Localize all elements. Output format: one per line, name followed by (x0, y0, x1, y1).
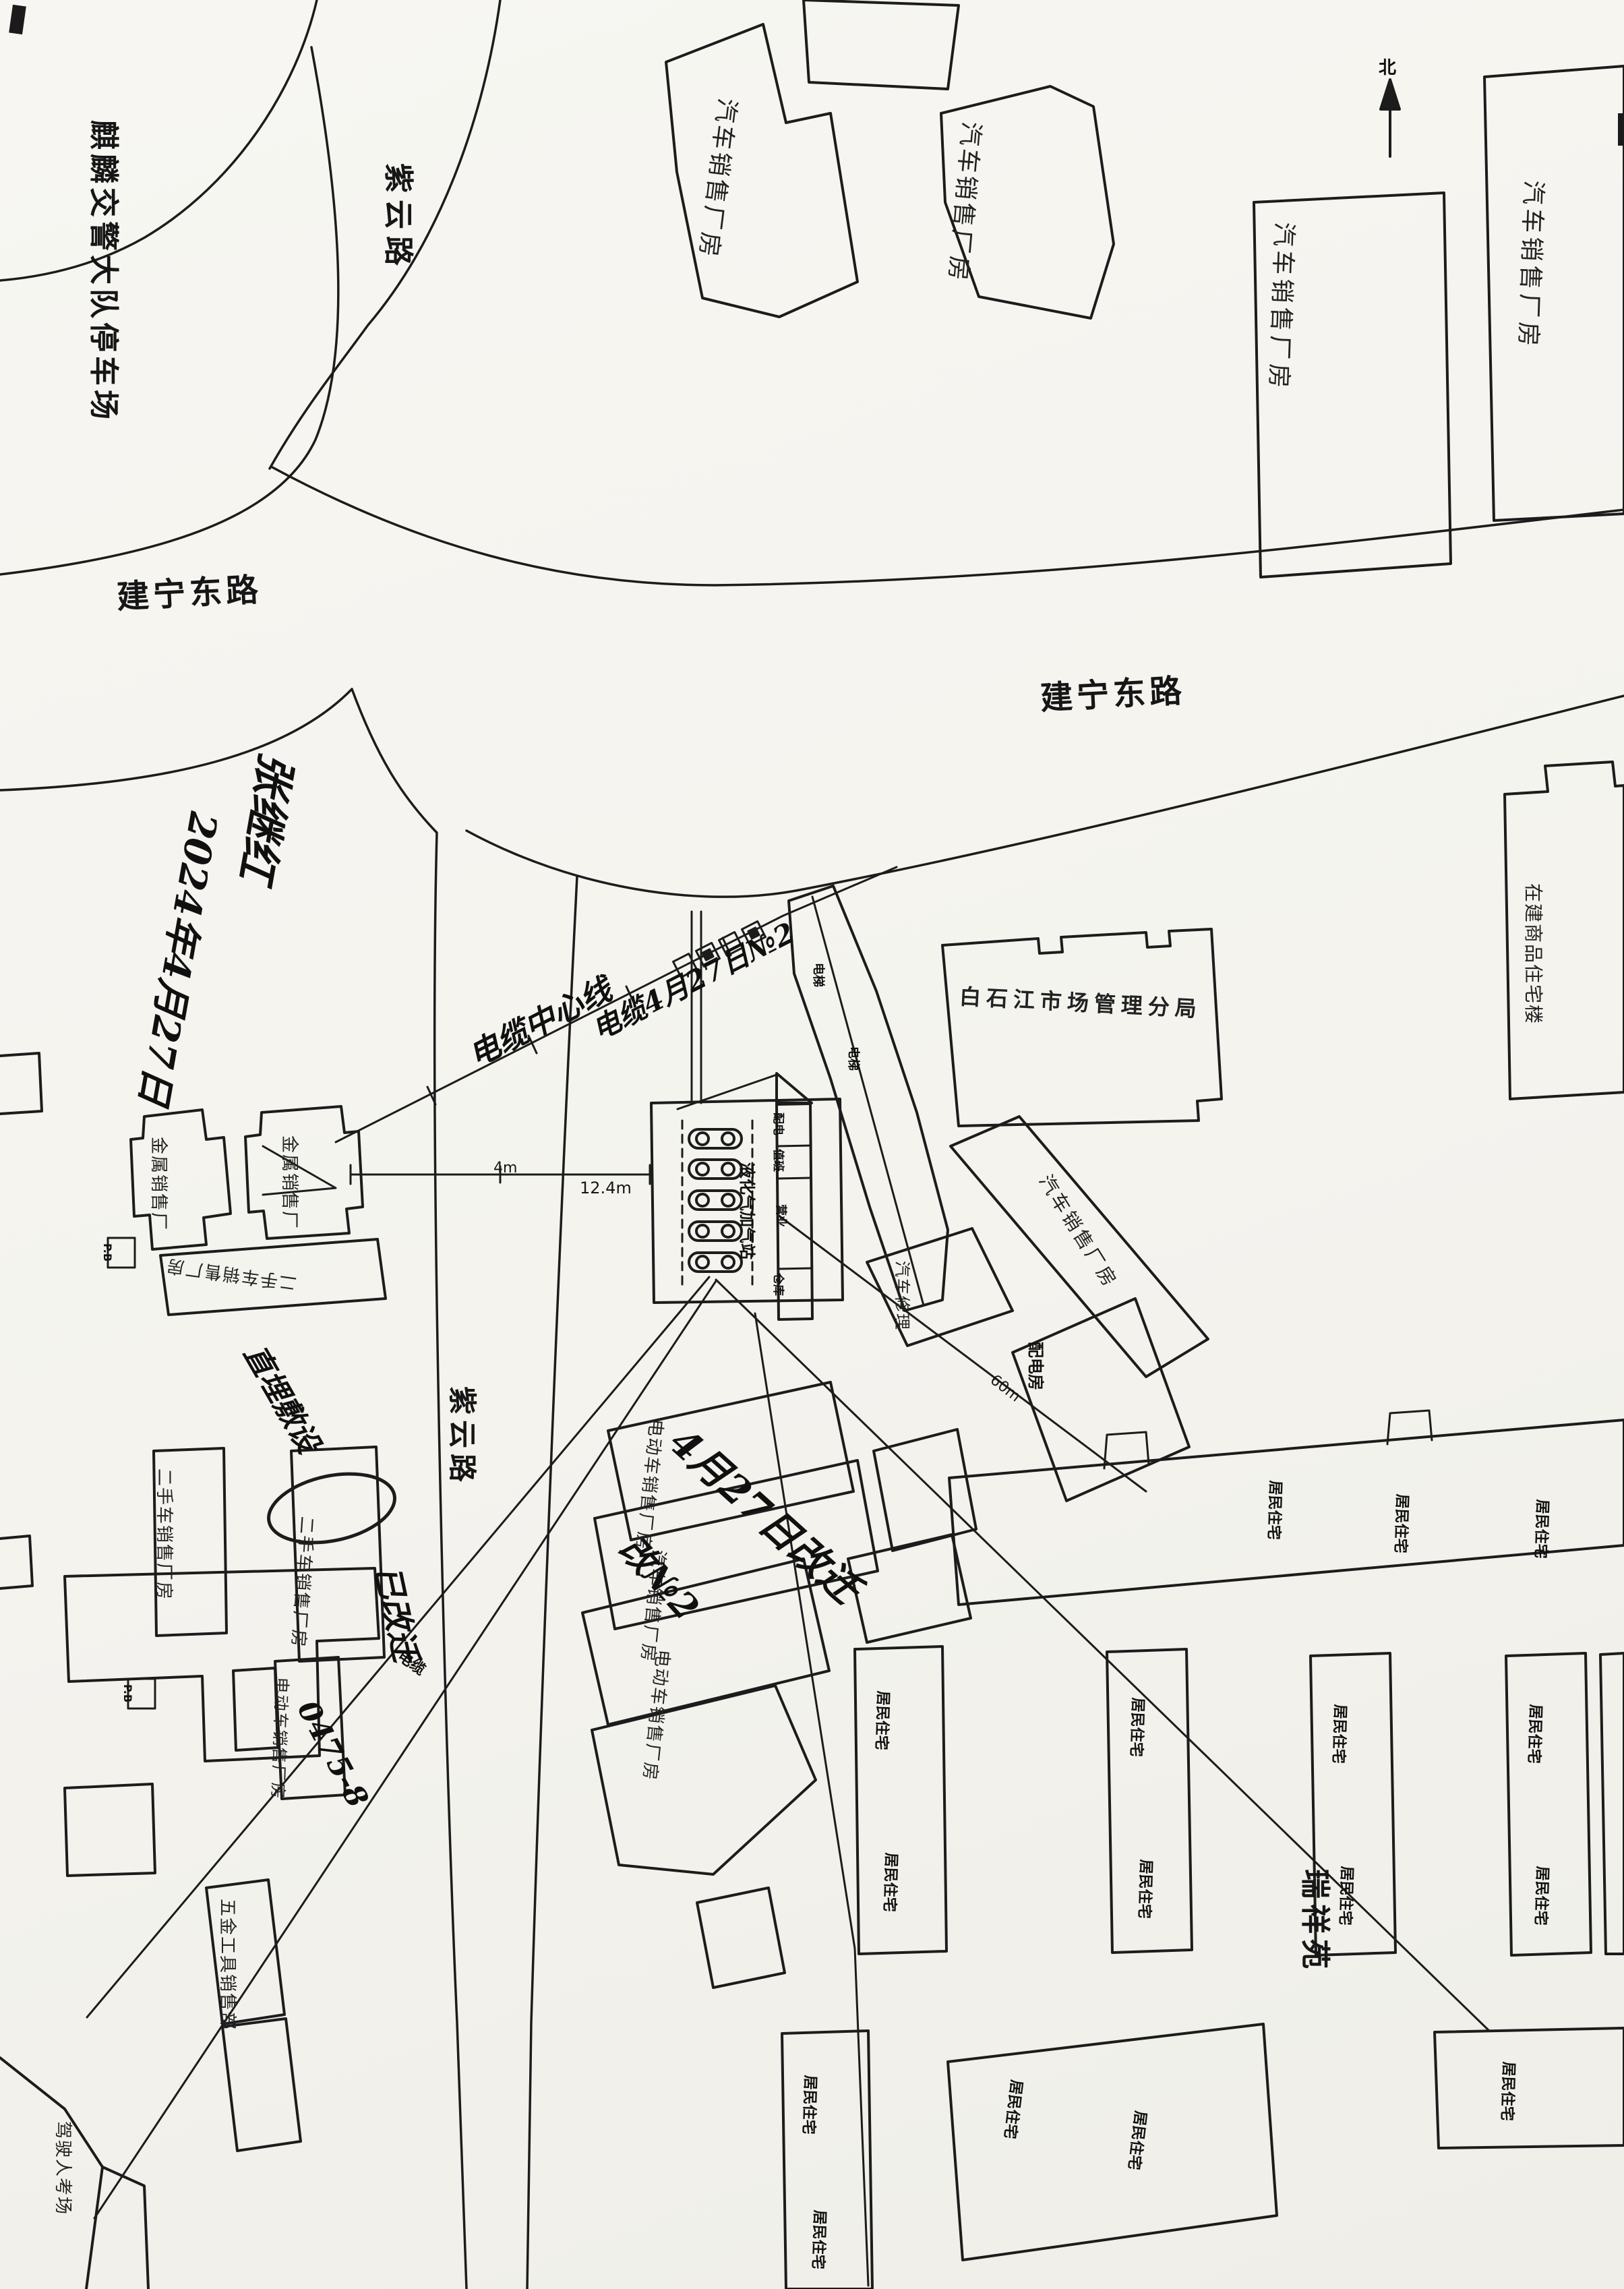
bldg-label-usedcar-left: 二手车销售厂房 (155, 1468, 173, 1601)
bldg-label-ebike-sales-2: 电动车销售厂房 (640, 1648, 671, 1782)
area-label-ruixiangyuan: 瑞祥苑 (1300, 1869, 1329, 1974)
bldg-label-hardware-tools: 五金工具销售部 (218, 1899, 236, 2031)
road-label-ziyun-south: 紫云路 (448, 1386, 476, 1487)
bldg-label-market-bureau: 白石江市场管理分局 (959, 986, 1202, 1020)
box-label-pb-2: P.B (122, 1684, 133, 1702)
bldg-label-residence-h1: 居民住宅 (1499, 2061, 1515, 2121)
room-label-yingye: 营业 (775, 1204, 786, 1227)
handwriting-big-note: 4月27日改迁 (663, 1421, 866, 1609)
bldg-label-residence-d2: 居民住宅 (1337, 1866, 1354, 1926)
bldg-label-usedcar-flipped: 二手车销售厂房 (164, 1256, 298, 1292)
room-label-peidian: 配电 (772, 1112, 783, 1135)
bldg-label-residence-c1: 居民住宅 (1128, 1697, 1145, 1757)
dim-label-12-4m: 12.4m (580, 1180, 632, 1196)
station-label-lpg: 液化气加气站 (739, 1162, 755, 1259)
road-label-jianning-west: 建宁东路 (116, 574, 263, 614)
bldg-label-residence-a3: 居民住宅 (1532, 1499, 1549, 1559)
handwriting-buried-note: 直埋敷设 (239, 1340, 324, 1458)
bldg-label-car-sales-2: 汽车销售厂房 (944, 121, 983, 284)
bldg-label-metal-sales-1: 金属销售厂 (150, 1137, 167, 1231)
bldg-label-residence-c2: 居民住宅 (1136, 1859, 1153, 1919)
handwriting-date: 2024年4月27日 (133, 809, 222, 1108)
road-label-qilin-parking: 麒麟交警大队停车场 (88, 120, 118, 423)
room-label-zhiban: 值班 (772, 1149, 783, 1172)
bldg-label-residence-e1: 居民住宅 (1526, 1704, 1542, 1764)
bldg-label-residence-f2: 居民住宅 (810, 2209, 826, 2269)
handwriting-number-note: 0475-8 (292, 1696, 372, 1812)
bldg-label-residence-f1: 居民住宅 (800, 2075, 817, 2135)
bldg-label-under-construction: 在建商品住宅楼 (1524, 883, 1542, 1025)
room-label-cangku: 仓库 (772, 1273, 783, 1296)
bldg-label-car-sales-diag: 汽车销售厂房 (1035, 1172, 1120, 1292)
bldg-label-metal-sales-2: 金属销售厂 (280, 1135, 298, 1230)
handwriting-oval-note: 已改迁 (370, 1563, 422, 1665)
box-label-pb-1: P.B (102, 1243, 113, 1261)
handwriting-signature: 张继红 (233, 749, 298, 884)
bldg-label-car-sales-3: 汽车销售厂房 (1265, 222, 1296, 392)
bldg-label-usedcar-mid: 二手车销售厂房 (289, 1516, 315, 1648)
bldg-label-residence-b2: 居民住宅 (881, 1852, 898, 1912)
bldg-label-residence-a2: 居民住宅 (1392, 1493, 1409, 1553)
map-labels-layer: 麒麟交警大队停车场紫云路建宁东路建宁东路紫云路汽车销售厂房汽车销售厂房汽车销售厂… (0, 0, 1624, 2289)
bldg-label-ebike-sales-3: 电动车销售厂房 (270, 1677, 290, 1800)
dim-label-4m: 4m (493, 1161, 517, 1176)
bldg-label-residence-b1: 居民住宅 (873, 1690, 890, 1750)
bldg-label-residence-g1: 居民住宅 (1001, 2079, 1023, 2139)
room-label-elevator-2: 电梯 (847, 1046, 859, 1071)
north-arrow-label: 北 (1379, 59, 1396, 77)
road-label-ziyun-north: 紫云路 (383, 163, 413, 272)
road-label-jianning-east: 建宁东路 (1040, 675, 1186, 715)
bldg-label-car-repair: 汽车修理 (894, 1261, 910, 1331)
room-label-elevator-1: 电梯 (812, 963, 824, 987)
dim-label-60m: 60m (987, 1373, 1023, 1405)
bldg-label-car-sales-4: 汽车销售厂房 (1515, 180, 1545, 351)
bldg-label-car-sales-1: 汽车销售厂房 (695, 97, 739, 261)
bldg-label-driver-test: 驾驶人考场 (54, 2121, 71, 2216)
bldg-label-residence-d1: 居民住宅 (1330, 1704, 1347, 1764)
bldg-label-residence-a1: 居民住宅 (1265, 1480, 1282, 1540)
bldg-label-peidianfang: 配电房 (1027, 1342, 1044, 1390)
bldg-label-residence-g2: 居民住宅 (1125, 2110, 1147, 2170)
handwriting-cable-note: 电缆4月27日№2 (588, 918, 800, 1044)
bldg-label-residence-e2: 居民住宅 (1532, 1866, 1549, 1926)
